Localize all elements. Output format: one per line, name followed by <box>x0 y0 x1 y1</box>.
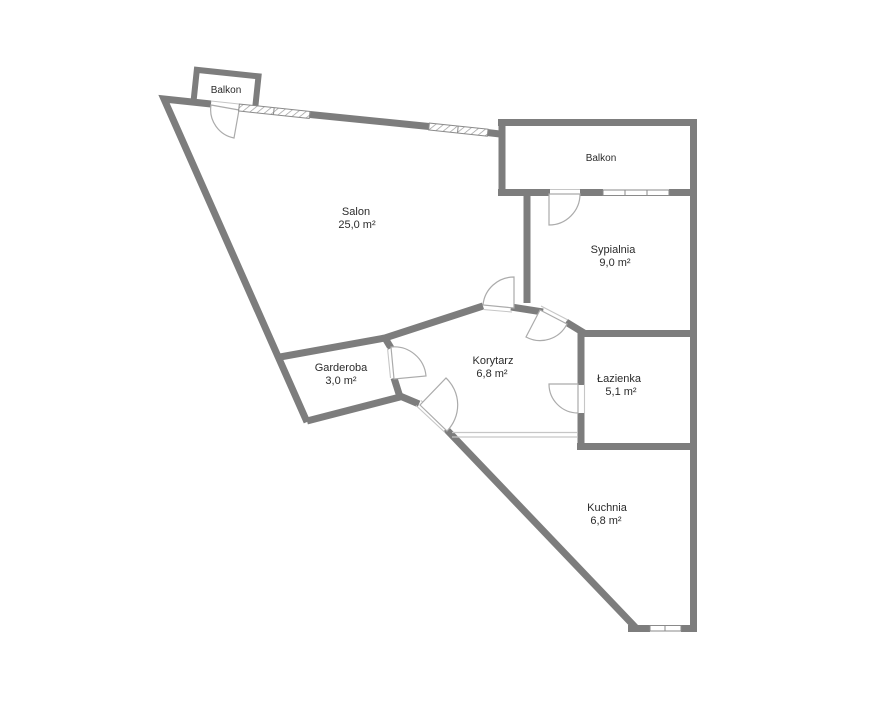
garderoba-area: 3,0 m² <box>325 375 357 387</box>
korytarz-label: Korytarz <box>473 355 514 367</box>
wall-door-node <box>511 307 543 312</box>
kuchnia-area: 6,8 m² <box>590 515 622 527</box>
balcony-left-label: Balkon <box>211 85 242 96</box>
balcony-right-label: Balkon <box>586 153 617 164</box>
salon-area: 25,0 m² <box>338 219 376 231</box>
kuchnia-label: Kuchnia <box>587 502 628 514</box>
plan-background <box>0 0 882 720</box>
window-bedroom <box>603 190 669 196</box>
window-kitchen <box>650 626 681 632</box>
korytarz-area: 6,8 m² <box>476 368 508 380</box>
salon-label: Salon <box>342 206 370 218</box>
wall-top-right-stub <box>487 133 500 135</box>
lazienka-area: 5,1 m² <box>605 386 637 398</box>
sypialnia-area: 9,0 m² <box>599 257 631 269</box>
sypialnia-label: Sypialnia <box>591 244 637 256</box>
garderoba-label: Garderoba <box>315 362 368 374</box>
floorplan-page: Balkon Balkon Salon 25,0 m² Sypialnia 9,… <box>0 0 882 720</box>
floorplan-svg: Balkon Balkon Salon 25,0 m² Sypialnia 9,… <box>0 0 882 720</box>
lazienka-label: Łazienka <box>597 373 642 385</box>
